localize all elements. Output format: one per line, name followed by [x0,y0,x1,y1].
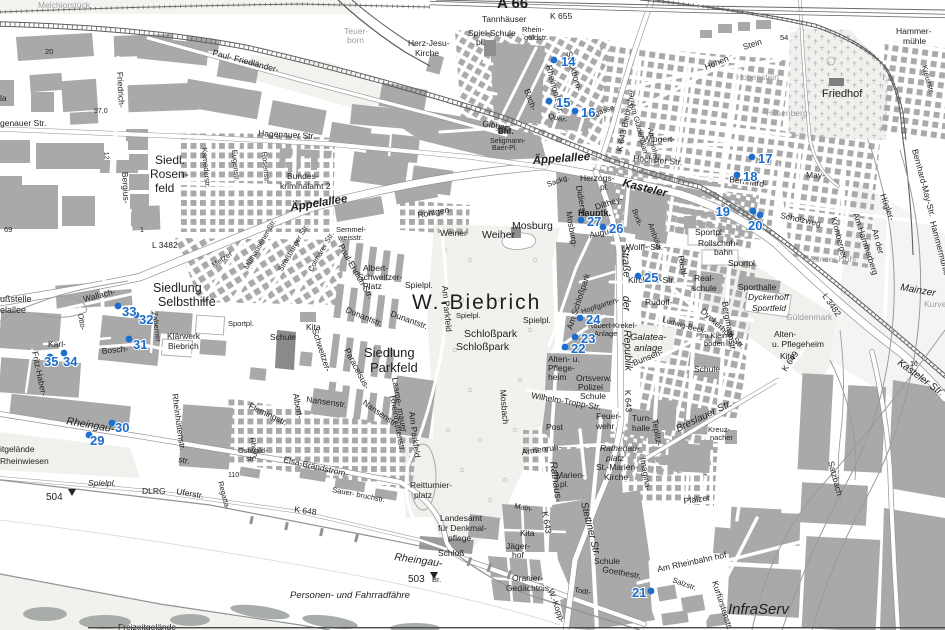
svg-text:nacher: nacher [710,433,733,442]
svg-text:Freizeitgelände: Freizeitgelände [118,622,176,630]
svg-text:20: 20 [45,47,53,56]
svg-text:der: der [620,296,633,312]
svg-text:Sportfeld: Sportfeld [752,303,786,313]
svg-text:Bundes-: Bundes- [287,171,319,181]
svg-text:itgelände: itgelände [0,444,35,454]
svg-text:Sporthalle: Sporthalle [738,282,777,292]
svg-text:32: 32 [139,312,153,327]
svg-text:schule: schule [692,283,717,293]
svg-text:Spielpl.: Spielpl. [523,315,551,325]
svg-text:Rathenau-: Rathenau- [600,443,640,453]
svg-text:mühle: mühle [903,36,926,46]
svg-text:Selbsthilfe: Selbsthilfe [158,295,216,309]
svg-text:weisstr.: weisstr. [337,233,363,242]
svg-text:elallee: elallee [0,305,26,315]
svg-text:Melchiorstück: Melchiorstück [38,0,91,10]
svg-text:Spielpl.: Spielpl. [405,280,433,290]
svg-text:35: 35 [44,354,58,369]
svg-text:Parkfeld: Parkfeld [370,360,418,375]
svg-text:Br.: Br. [432,575,441,584]
svg-text:Baer-Pl.: Baer-Pl. [492,145,517,152]
svg-text:Weiher: Weiher [482,229,516,241]
svg-text:str.: str. [178,454,191,466]
svg-text:Kita: Kita [306,322,321,332]
svg-text:Tannhäuser: Tannhäuser [482,14,527,24]
svg-text:15: 15 [556,95,570,110]
svg-text:Friedhof: Friedhof [822,88,863,100]
svg-text:pl.: pl. [476,37,485,47]
svg-text:Spielpl.: Spielpl. [456,311,481,320]
svg-text:54: 54 [780,33,788,42]
svg-text:69: 69 [4,225,12,234]
svg-text:Herzogs-: Herzogs- [580,173,615,183]
svg-text:Oranier-: Oranier- [512,573,543,583]
svg-text:Schule: Schule [694,364,720,374]
svg-text:16: 16 [581,105,595,120]
svg-text:goldstr.: goldstr. [524,33,548,42]
svg-text:30: 30 [115,420,129,435]
svg-text:Kirche: Kirche [415,48,439,58]
svg-text:Landesamt: Landesamt [440,513,483,523]
svg-text:kriminalamt 2: kriminalamt 2 [280,181,331,191]
svg-text:wehr: wehr [595,421,615,431]
svg-text:Herz-Jesu-: Herz-Jesu- [408,38,450,48]
svg-text:Turn-: Turn- [632,413,652,423]
svg-text:25: 25 [644,270,658,285]
svg-text:hof: hof [512,550,524,560]
svg-text:23: 23 [581,331,595,346]
svg-text:Rosen-: Rosen- [150,167,189,181]
svg-text:Güldenmark: Güldenmark [786,312,833,322]
svg-text:heim: heim [548,372,566,382]
svg-text:Sportpl.: Sportpl. [228,319,254,328]
svg-text:für Denkmal-: für Denkmal- [438,523,487,533]
svg-text:Bergius-: Bergius- [120,172,132,204]
svg-text:Dyckerhoff: Dyckerhoff [748,292,790,302]
svg-text:K 655: K 655 [550,11,572,21]
svg-text:bahn: bahn [714,247,733,257]
svg-text:20: 20 [748,218,762,233]
svg-text:33: 33 [122,304,136,319]
svg-text:boden: boden [704,339,725,348]
svg-text:la: la [0,93,7,103]
svg-text:34: 34 [63,354,78,369]
svg-text:A 66: A 66 [497,0,528,12]
svg-text:Schloßpark: Schloßpark [456,341,510,353]
svg-text:24: 24 [586,312,601,327]
svg-text:27: 27 [587,214,601,229]
svg-text:Weiner: Weiner [440,228,467,238]
svg-text:504: 504 [46,492,63,503]
svg-text:St.-Marien-: St.-Marien- [596,462,638,472]
svg-text:Seligmann-: Seligmann- [490,138,526,145]
svg-text:feld: feld [155,181,174,195]
svg-text:Galatea-: Galatea- [630,332,666,343]
svg-text:pl.: pl. [600,182,609,192]
svg-text:halle: halle [632,423,650,433]
svg-text:31: 31 [133,337,147,352]
svg-text:Karl-: Karl- [48,339,66,349]
svg-text:genauer Str.: genauer Str. [0,118,46,128]
svg-text:Siedlung: Siedlung [153,281,202,295]
svg-text:29: 29 [90,433,104,448]
svg-text:u. Pflegeheim: u. Pflegeheim [772,339,824,349]
svg-text:Personen- und Fahrradfähre: Personen- und Fahrradfähre [290,590,410,601]
svg-text:Reitturnier-: Reitturnier- [410,480,452,490]
svg-text:14: 14 [561,54,576,69]
svg-text:Friedrich-: Friedrich- [115,72,127,109]
svg-text:Kita: Kita [520,528,535,538]
svg-text:Kirche: Kirche [604,472,628,482]
svg-text:Sportpl.: Sportpl. [728,258,757,268]
svg-text:Post: Post [546,422,564,432]
svg-text:Schule: Schule [270,332,296,342]
svg-text:Rheinwiesen: Rheinwiesen [0,456,49,466]
svg-text:110: 110 [228,472,239,479]
svg-text:Spielpl.: Spielpl. [88,478,116,488]
svg-text:Mosburg: Mosburg [512,220,553,232]
svg-text:Kurve: Kurve [924,299,945,309]
svg-text:Sportpl.: Sportpl. [695,227,724,237]
svg-text:DLRG: DLRG [142,486,166,496]
svg-text:1: 1 [140,227,144,234]
svg-text:26: 26 [609,221,623,236]
svg-text:Feuer-: Feuer- [596,411,621,421]
svg-text:Hammer-: Hammer- [896,26,932,36]
svg-text:17: 17 [758,151,772,166]
svg-text:Siedlung: Siedlung [364,345,415,360]
svg-text:19: 19 [716,204,730,219]
svg-text:pflege: pflege [448,533,471,543]
svg-text:Rudolf-: Rudolf- [645,297,673,307]
svg-text:May-: May- [806,170,825,180]
svg-text:21: 21 [632,585,646,600]
svg-text:ußstelle: ußstelle [0,294,32,304]
svg-text:L 3482: L 3482 [152,240,178,250]
svg-text:born: born [347,35,364,45]
svg-text:503: 503 [408,574,425,585]
svg-text:K 643: K 643 [623,390,634,413]
svg-text:Hohenstein: Hohenstein [736,72,779,82]
svg-text:platz: platz [414,490,432,500]
svg-text:Schloßpark: Schloßpark [464,328,518,340]
svg-text:97,0: 97,0 [94,108,108,115]
svg-text:Schloß: Schloß [438,548,464,558]
svg-text:Siedl.: Siedl. [155,153,185,167]
svg-text:InfraServ: InfraServ [728,601,790,618]
svg-text:Biebrich: Biebrich [168,341,199,351]
svg-text:Hosenberg: Hosenberg [766,108,808,118]
svg-text:18: 18 [743,169,757,184]
svg-text:Alten-: Alten- [774,329,796,339]
svg-text:Real-: Real- [694,273,714,283]
svg-text:12: 12 [102,152,110,160]
svg-text:Gedächtnis: Gedächtnis [506,583,549,593]
svg-text:Anlage: Anlage [594,329,617,338]
svg-text:Klärwerk: Klärwerk [167,331,201,341]
